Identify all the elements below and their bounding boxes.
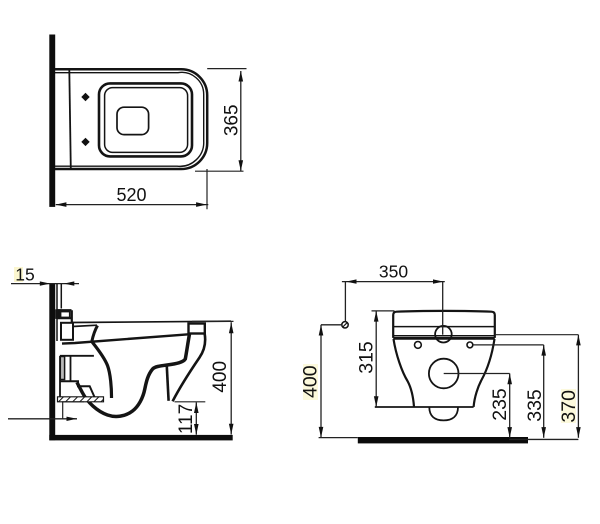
svg-text:235: 235 xyxy=(489,388,511,421)
svg-text:370: 370 xyxy=(558,390,580,423)
svg-text:117: 117 xyxy=(176,404,197,434)
svg-text:400: 400 xyxy=(210,361,231,393)
svg-text:400: 400 xyxy=(300,365,322,398)
svg-text:365: 365 xyxy=(222,104,243,136)
svg-text:520: 520 xyxy=(116,185,146,205)
svg-text:15: 15 xyxy=(15,265,34,285)
svg-text:350: 350 xyxy=(379,262,408,282)
svg-text:315: 315 xyxy=(356,341,378,374)
svg-text:335: 335 xyxy=(524,389,546,422)
